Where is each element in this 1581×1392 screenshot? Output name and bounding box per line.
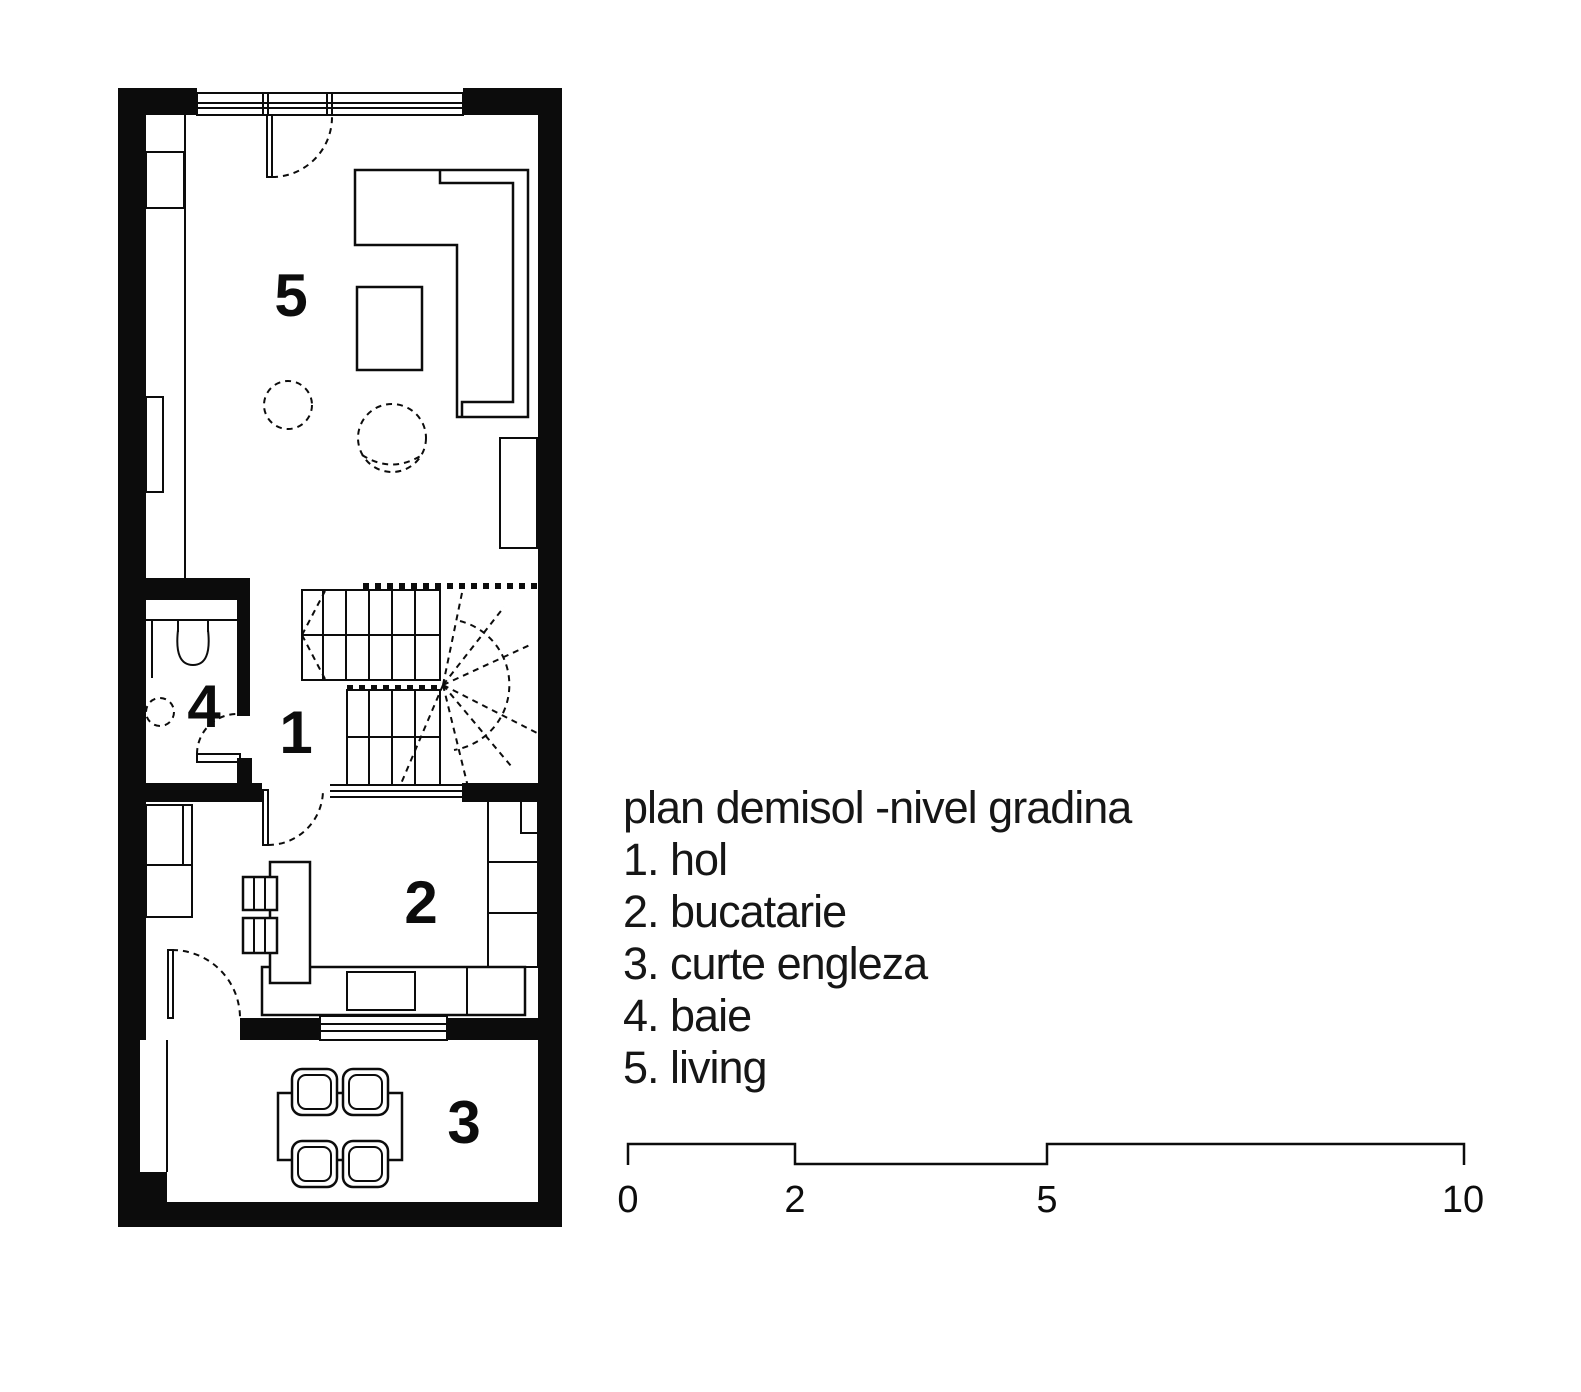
wall-living-bath-divider (140, 578, 250, 600)
sofa-backrest-line (440, 170, 513, 417)
scale-tick-10: 10 (1442, 1179, 1484, 1221)
scale-bar: 0 2 5 10 (617, 1144, 1484, 1221)
radiator (146, 397, 163, 492)
kitchen (146, 790, 538, 1018)
outdoor-chair (343, 1141, 388, 1187)
wall-right (538, 88, 562, 1227)
room-label-hol: 1 (279, 699, 312, 766)
outdoor-chair (292, 1141, 337, 1187)
staircase (302, 586, 537, 787)
appliance (521, 797, 538, 833)
kitchen-chair (243, 877, 277, 910)
stair-break-line (302, 591, 325, 635)
courtyard (278, 1069, 402, 1187)
counter-left (146, 865, 192, 917)
armchair-back-line (362, 455, 422, 465)
sink (146, 698, 174, 726)
wall-bottom (118, 1202, 562, 1227)
winder-tread-line (443, 588, 463, 685)
wall-cabinet (146, 152, 184, 208)
wall-bath-bottom (118, 783, 262, 802)
scale-bar-line (628, 1144, 1464, 1165)
tall-cabinet (500, 438, 537, 548)
door-leaf (197, 754, 240, 762)
winder-tread-line (443, 607, 504, 685)
winder-tread-line (443, 685, 537, 733)
door-swing-arc (272, 117, 332, 177)
legend: plan demisol -nivel gradina 1. hol 2. bu… (623, 782, 1131, 1094)
wall-kitchen-court-right (447, 1018, 538, 1040)
outdoor-chair (292, 1069, 337, 1115)
legend-item-curte: 3. curte engleza (623, 938, 1131, 990)
door-leaf (168, 950, 173, 1018)
wall-left-lower (118, 1040, 140, 1175)
legend-item-hol: 1. hol (623, 834, 1131, 886)
chair-seat (243, 918, 277, 953)
winder-tread-line (400, 685, 443, 786)
door-leaf (263, 790, 268, 845)
toilet-bowl (177, 630, 208, 665)
winder-tread-line (443, 685, 468, 787)
armchair (358, 404, 426, 472)
scale-tick-2: 2 (784, 1179, 805, 1221)
door-leaf (267, 115, 272, 177)
hall-kitchen-partition (330, 785, 462, 797)
plan-title: plan demisol -nivel gradina (623, 782, 1131, 834)
wall-bath-right (237, 600, 250, 716)
kitchen-chair (243, 918, 277, 953)
living-entry-door (267, 115, 332, 177)
courtyard-window (320, 1016, 447, 1040)
scale-tick-5: 5 (1036, 1179, 1057, 1221)
room-label-bucatarie: 2 (404, 869, 437, 936)
chair-seat (243, 877, 277, 910)
stair-break-line (302, 635, 325, 679)
top-window (197, 93, 463, 115)
door-swing-arc (268, 790, 323, 845)
pouf (264, 381, 312, 429)
winder-tread-line (443, 685, 511, 766)
living-room (146, 115, 537, 578)
toilet (177, 620, 208, 665)
wall-hall-kitchen-right (462, 783, 538, 802)
window-frame (320, 1016, 447, 1040)
legend-item-living: 5. living (623, 1042, 1131, 1094)
sofa-outline (355, 170, 528, 417)
winder-tread-line (443, 644, 532, 685)
pantry-cabinet (146, 805, 192, 865)
legend-item-baie: 4. baie (623, 990, 1131, 1042)
coffee-table (357, 287, 422, 370)
room-label-baie: 4 (187, 673, 221, 740)
floor-plan-sheet: 5 4 1 2 3 0 2 5 10 plan demisol -nivel g… (0, 0, 1581, 1392)
room-label-curte: 3 (447, 1089, 480, 1156)
counter-right (488, 795, 538, 967)
wall-left (118, 88, 146, 1040)
legend-item-bucatarie: 2. bucatarie (623, 886, 1131, 938)
door-swing-arc (172, 950, 240, 1018)
floor-plan-drawing: 5 4 1 2 3 0 2 5 10 (0, 0, 1581, 1392)
wall-kitchen-court-left (240, 1018, 320, 1040)
outdoor-chair (343, 1069, 388, 1115)
scale-tick-0: 0 (617, 1179, 638, 1221)
room-label-living: 5 (274, 262, 307, 329)
